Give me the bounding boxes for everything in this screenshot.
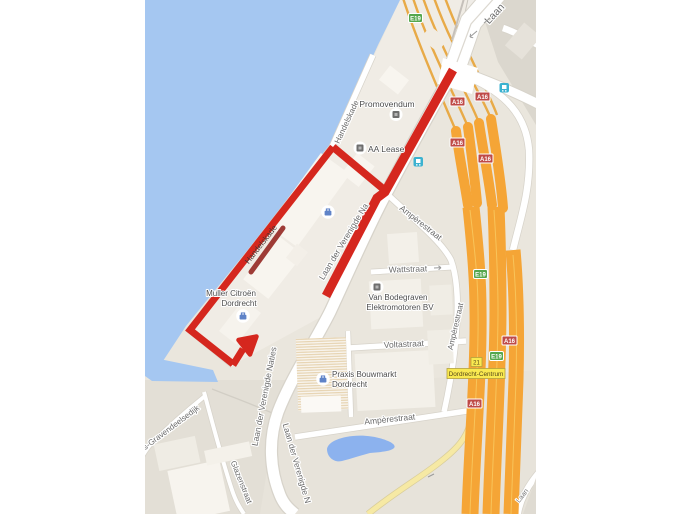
svg-text:E19: E19 [491, 355, 502, 361]
svg-text:21: 21 [473, 361, 480, 367]
svg-text:Wattstraat: Wattstraat [389, 263, 428, 274]
svg-text:A16: A16 [452, 100, 464, 106]
svg-text:Voltastraat: Voltastraat [384, 338, 425, 350]
svg-text:Dordrecht: Dordrecht [332, 380, 368, 389]
svg-text:A16: A16 [469, 402, 481, 408]
svg-text:A16: A16 [477, 95, 489, 101]
svg-text:Promovendum: Promovendum [359, 99, 414, 109]
svg-text:Van Bodegraven: Van Bodegraven [368, 293, 427, 302]
svg-text:Praxis Bouwmarkt: Praxis Bouwmarkt [332, 370, 397, 379]
svg-text:Dordrecht-Centrum: Dordrecht-Centrum [449, 371, 504, 378]
svg-text:A16: A16 [480, 157, 492, 163]
svg-text:A16: A16 [504, 339, 516, 345]
svg-text:Dordrecht: Dordrecht [221, 299, 257, 308]
svg-text:Elektromotoren BV: Elektromotoren BV [366, 303, 434, 312]
svg-text:A16: A16 [452, 141, 464, 147]
svg-text:E19: E19 [475, 273, 486, 279]
svg-text:AA Lease: AA Lease [368, 144, 405, 154]
svg-text:E19: E19 [410, 17, 421, 23]
svg-text:Muller Citroën: Muller Citroën [206, 289, 256, 298]
